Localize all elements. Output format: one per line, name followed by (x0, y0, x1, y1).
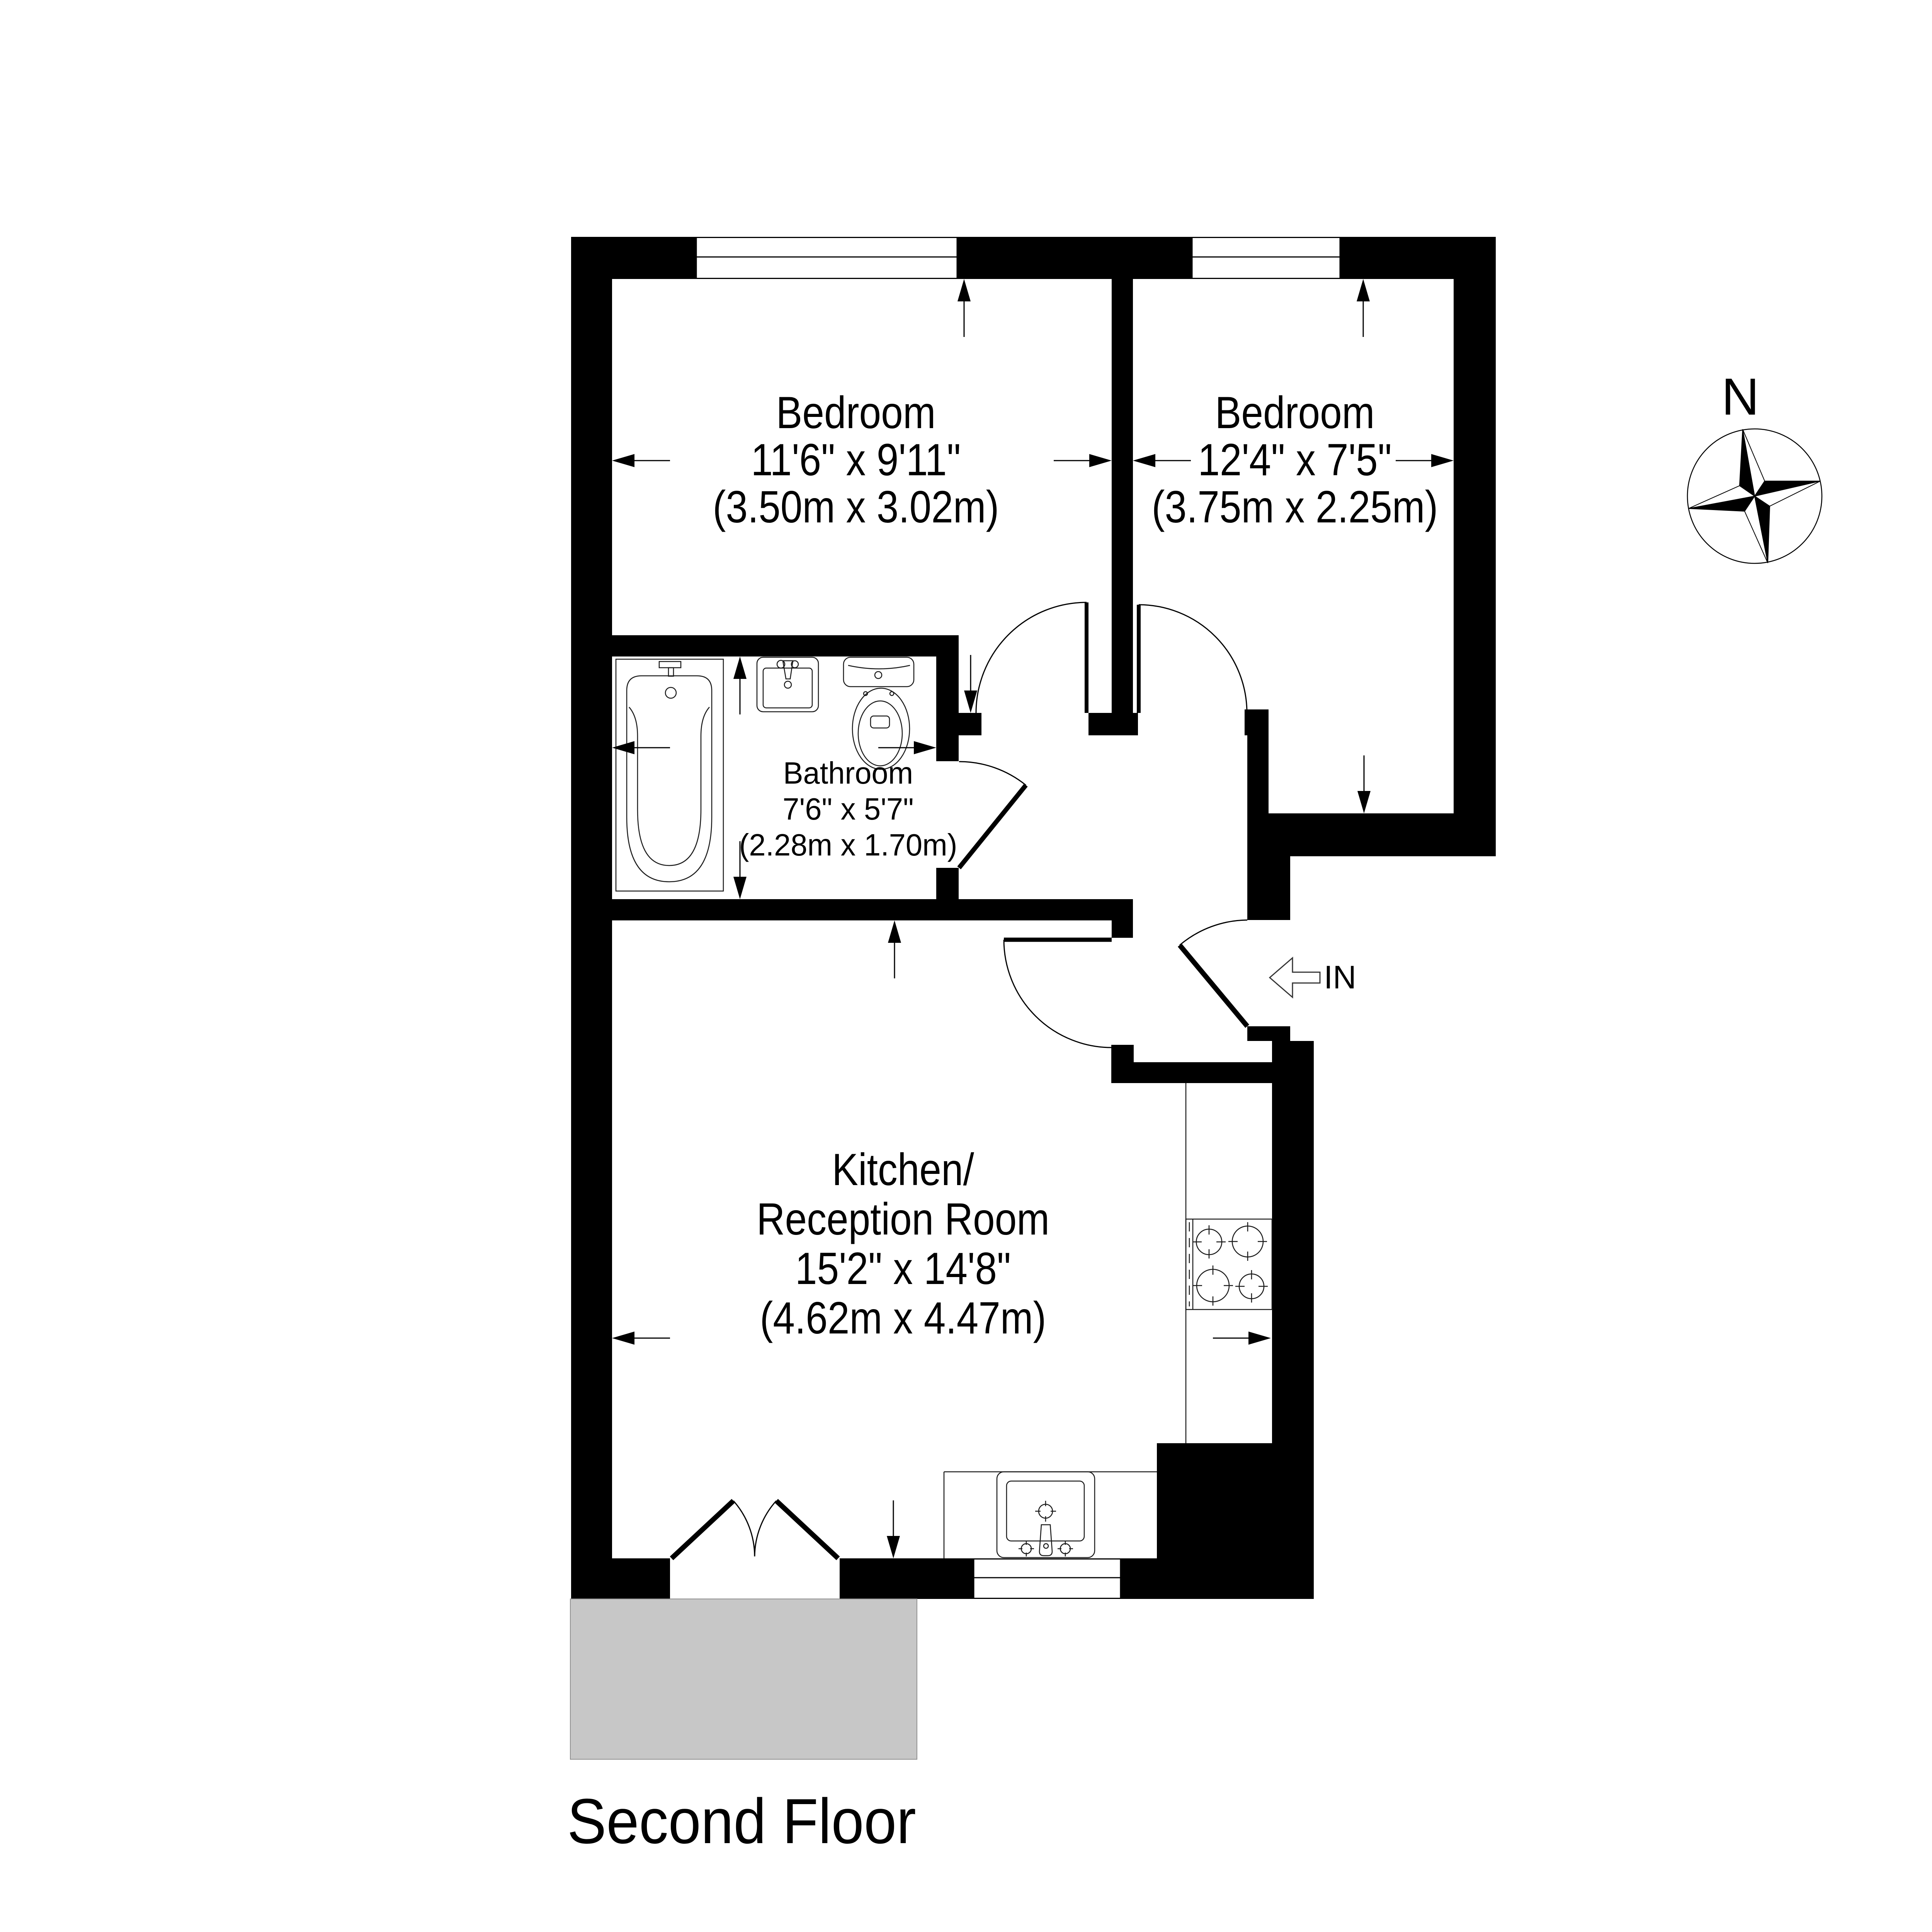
svg-text:Bathroom: Bathroom (783, 756, 913, 790)
svg-text:Reception Room: Reception Room (757, 1194, 1049, 1244)
svg-text:(3.75m x 2.25m): (3.75m x 2.25m) (1152, 482, 1438, 532)
svg-text:Bedroom: Bedroom (1215, 388, 1375, 438)
svg-text:Second Floor: Second Floor (567, 1785, 916, 1857)
svg-text:(2.28m x 1.70m): (2.28m x 1.70m) (739, 828, 957, 862)
svg-text:11'6" x 9'11": 11'6" x 9'11" (751, 435, 961, 485)
svg-text:15'2" x 14'8": 15'2" x 14'8" (795, 1243, 1011, 1294)
svg-text:(4.62m x 4.47m): (4.62m x 4.47m) (760, 1293, 1046, 1343)
svg-text:12'4" x 7'5": 12'4" x 7'5" (1198, 435, 1392, 485)
svg-text:Bedroom: Bedroom (776, 388, 936, 438)
svg-text:IN: IN (1324, 959, 1356, 995)
svg-text:(3.50m x 3.02m): (3.50m x 3.02m) (713, 482, 999, 532)
svg-text:N: N (1721, 367, 1759, 426)
svg-text:Kitchen/: Kitchen/ (832, 1145, 974, 1195)
svg-text:7'6" x 5'7": 7'6" x 5'7" (782, 792, 913, 826)
